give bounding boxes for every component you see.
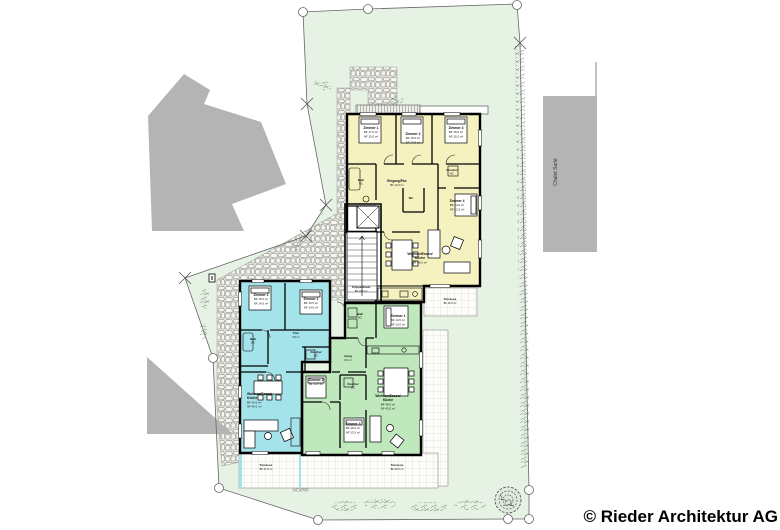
label-c-zimmer1: Zimmer 1BF 15.5 m²NF 14.0 m² [303,297,318,309]
elevator-icon [357,206,379,228]
boundary-sign-icon [209,274,215,282]
hedge-south-1 [331,501,359,511]
label-c-zimmer2: Zimmer 2BF 16.0 m²NF 14.5 m² [253,293,268,305]
neighbor-building-east: Chalet Sarlé [543,62,597,252]
label-y-zimmer2: Zimmer 2BF 15.0 m²NF 13.5 m² [405,132,420,144]
label-terrasse-west: TerrasseBF 27.0 m² [260,463,273,471]
label-g-zimmer2: Zimmer 2BF 13.5 m² [308,378,323,386]
terrace-divider [299,453,301,488]
shrub-north-2 [390,96,404,104]
label-y-wc: WC [409,196,414,200]
neighbor-building-label: Chalet Sarlé [553,158,559,186]
hedge-south-2 [364,499,396,509]
label-y-zimmer4: Zimmer 4BF 14.0 m²NF 12.5 m² [449,199,464,211]
terrace-edge-strip [239,453,242,488]
shrub-west-1 [200,289,210,309]
tree-icon [495,487,521,513]
site-plan-svg: Chalet Sarlé [0,0,780,530]
label-g-zimmer1: Zimmer 1BF 14.5 m²NF 13.0 m² [390,314,405,326]
label-terrasse-ost: TerrasseBF 30.5 m² [391,463,404,471]
label-g-gang: Gang8.0 m² [344,354,352,362]
neighbor-building-west [148,74,286,231]
floor-plan-canvas: Chalet Sarlé [0,0,780,530]
label-c-flur: Flur9.5 m² [292,331,299,339]
label-y-terrasse: TerrasseBF 16.0 m² [444,297,457,305]
label-y-zimmer3: Zimmer 3BF 16.5 m²NF 15.0 m² [448,126,463,138]
hedge-south-4 [454,500,486,510]
label-g-zimmer3: Zimmer 3BF 15.0 m²NF 13.5 m² [345,422,360,434]
copyright-text: © Rieder Architektur AG [583,507,778,526]
hedge-south-3 [408,502,448,512]
label-y-zimmer1: Zimmer 1BF 17.0 m²NF 15.5 m² [363,126,378,138]
